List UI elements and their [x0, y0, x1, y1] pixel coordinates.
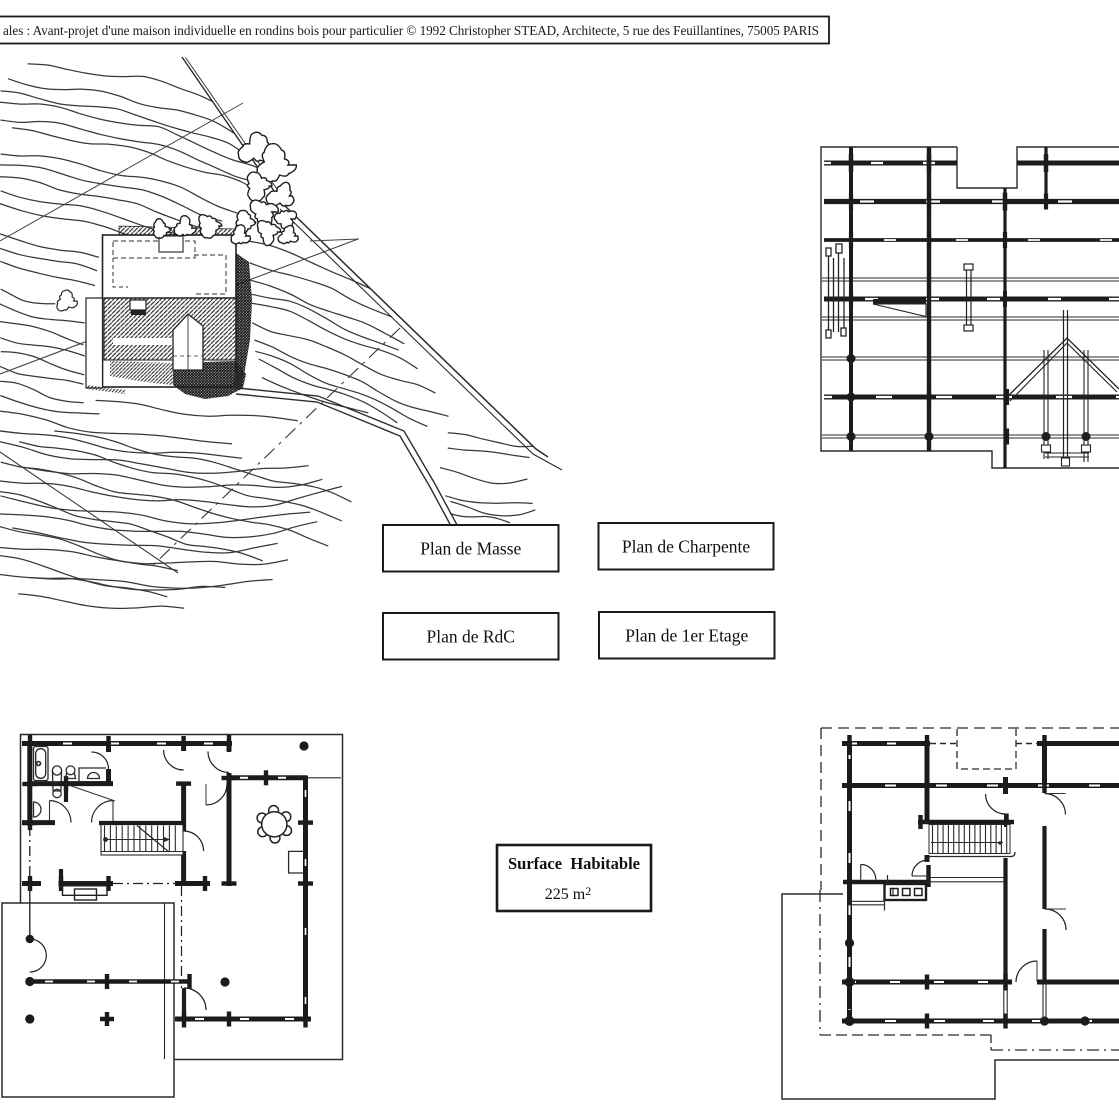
svg-text:Plan de 1er Etage: Plan de 1er Etage: [625, 625, 748, 645]
svg-text:ales : Avant-projet d'une mais: ales : Avant-projet d'une maison individ…: [3, 23, 819, 38]
svg-text:Plan de Charpente: Plan de Charpente: [622, 536, 751, 556]
svg-text:Plan de RdC: Plan de RdC: [427, 626, 515, 646]
svg-text:225 m2: 225 m2: [545, 884, 591, 903]
svg-text:Plan de Masse: Plan de Masse: [420, 538, 521, 558]
svg-text:Surface Habitable: Surface Habitable: [508, 854, 640, 873]
